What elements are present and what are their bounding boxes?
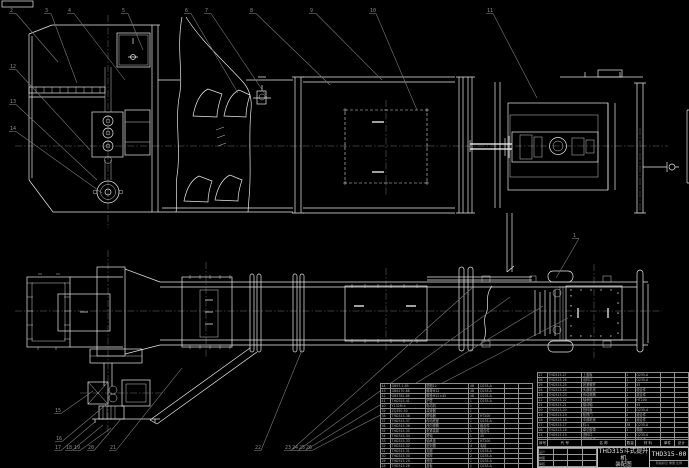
callout-label: 8 — [250, 8, 253, 14]
leader-line — [116, 368, 182, 451]
callout-label: 25 — [299, 445, 305, 451]
upper-door — [117, 33, 150, 67]
bom-cell: 材 料 — [635, 440, 660, 447]
inlet-box — [97, 267, 125, 356]
title-block: 设计制图审核 THD315斗式提升机 装配图 THD315-00 阶段标记 重量… — [537, 447, 689, 468]
watermark-logo — [149, 439, 174, 465]
plan-section-a — [182, 275, 232, 349]
leader-line — [16, 14, 58, 63]
bom-cell — [504, 464, 518, 468]
leader-line — [316, 14, 382, 81]
table-row: 28THD315-28盖板1Q235-A — [381, 464, 533, 468]
leader-line — [556, 239, 579, 279]
bom-cell: THD315-28 — [391, 464, 426, 468]
bom-cell: 1 — [469, 464, 479, 468]
callout-label: 26 — [306, 445, 312, 451]
takeup-rollers — [103, 116, 113, 164]
support-brace — [150, 348, 257, 424]
leader-line — [493, 14, 537, 99]
leader-line — [94, 419, 121, 451]
bom-cell: Q235-A — [479, 464, 504, 468]
bom-cell: 审核 — [539, 461, 554, 467]
bom-cell: 盖板 — [425, 464, 469, 468]
bom-cell: 序号 — [538, 440, 548, 447]
callout-label: 9 — [310, 8, 313, 14]
callout-label: 20 — [88, 445, 94, 451]
callout-label: 6 — [185, 8, 188, 14]
bom-cell: 数量 — [625, 440, 635, 447]
leader-line — [191, 14, 238, 94]
drawing-type: 装配图 — [598, 462, 649, 468]
boot-section — [29, 25, 162, 212]
middle-casing-top — [292, 77, 475, 213]
product-title: THD315斗式提升机 — [598, 448, 649, 462]
callout-label: 17 — [55, 445, 61, 451]
bom-cell — [568, 461, 583, 467]
bucket-cutaway — [158, 17, 293, 212]
takeup-screw — [643, 162, 679, 172]
callout-label: 22 — [255, 445, 261, 451]
bom-cell: 总计 — [674, 440, 688, 447]
top-view — [29, 17, 689, 272]
callout-label: 14 — [10, 126, 16, 132]
callout-label: 24 — [292, 445, 298, 451]
callout-label: 5 — [122, 8, 125, 14]
callout-label: 10 — [370, 8, 376, 14]
boot-end-cover — [58, 294, 110, 331]
callout-label: 19 — [74, 445, 80, 451]
bucket-bolt — [257, 91, 266, 104]
drawing-number-cell: THD315-00 阶段标记 重量 比例 — [650, 448, 688, 467]
leader-line — [62, 403, 108, 442]
leader-line — [261, 350, 302, 451]
callout-label: 18 — [66, 445, 72, 451]
bom-cell: 单件 — [661, 440, 675, 447]
leader-line — [128, 14, 143, 51]
signature-grid: 设计制图审核 — [538, 448, 598, 467]
discharge-spout — [507, 213, 514, 272]
callout-label: 1 — [573, 233, 576, 239]
drawing-number: THD315-00 — [650, 448, 688, 460]
bom-table-left: 44GB97.1-85垫圈1248Q235-A43GB6170-86螺母M124… — [380, 383, 533, 468]
bom-cell — [582, 461, 597, 467]
bom-header-row: 序号代 号名 称数量材 料单件总计备注 — [537, 439, 689, 447]
table-row: 审核 — [539, 461, 597, 467]
callout-label: 2 — [10, 8, 13, 14]
callout-label: 23 — [285, 445, 291, 451]
bom-cell — [518, 464, 532, 468]
plan-drive-unit — [88, 348, 257, 424]
table-row: 序号代 号名 称数量材 料单件总计备注 — [538, 440, 689, 447]
leader-line — [211, 14, 267, 98]
bom-cell: 名 称 — [582, 440, 625, 447]
bom-table-right: 27THD315-27上盖板1Q235-A26THD315-26出料口1Q235… — [537, 372, 689, 439]
leader-line — [256, 14, 330, 86]
plan-casing — [70, 267, 637, 356]
callout-label: 13 — [10, 99, 16, 105]
callout-label: 3 — [45, 8, 48, 14]
bom-cell — [553, 461, 568, 467]
leader-line — [376, 14, 417, 111]
leader-line — [16, 105, 97, 181]
bom-cell: 代 号 — [548, 440, 582, 447]
callout-label: 11 — [487, 8, 493, 14]
callout-label: 21 — [110, 445, 116, 451]
callout-label: 7 — [205, 8, 208, 14]
title-bottom-note: 阶段标记 重量 比例 — [650, 460, 688, 467]
plan-end-flange — [27, 274, 110, 350]
head-drive-section — [470, 70, 689, 213]
callout-label: 15 — [55, 408, 61, 414]
bom-cell: 28 — [381, 464, 391, 468]
callout-label: 12 — [10, 64, 16, 70]
leader-line — [51, 14, 77, 84]
callout-label: 16 — [56, 436, 62, 442]
sheet-corner-mark — [2, 1, 33, 7]
leader-line — [16, 70, 90, 151]
drawing-sheet: 2345678910111213141516171819202122232425… — [0, 0, 689, 468]
takeup-frame — [92, 112, 123, 157]
title-cell: THD315斗式提升机 装配图 — [598, 448, 650, 467]
callout-label: 4 — [68, 8, 71, 14]
